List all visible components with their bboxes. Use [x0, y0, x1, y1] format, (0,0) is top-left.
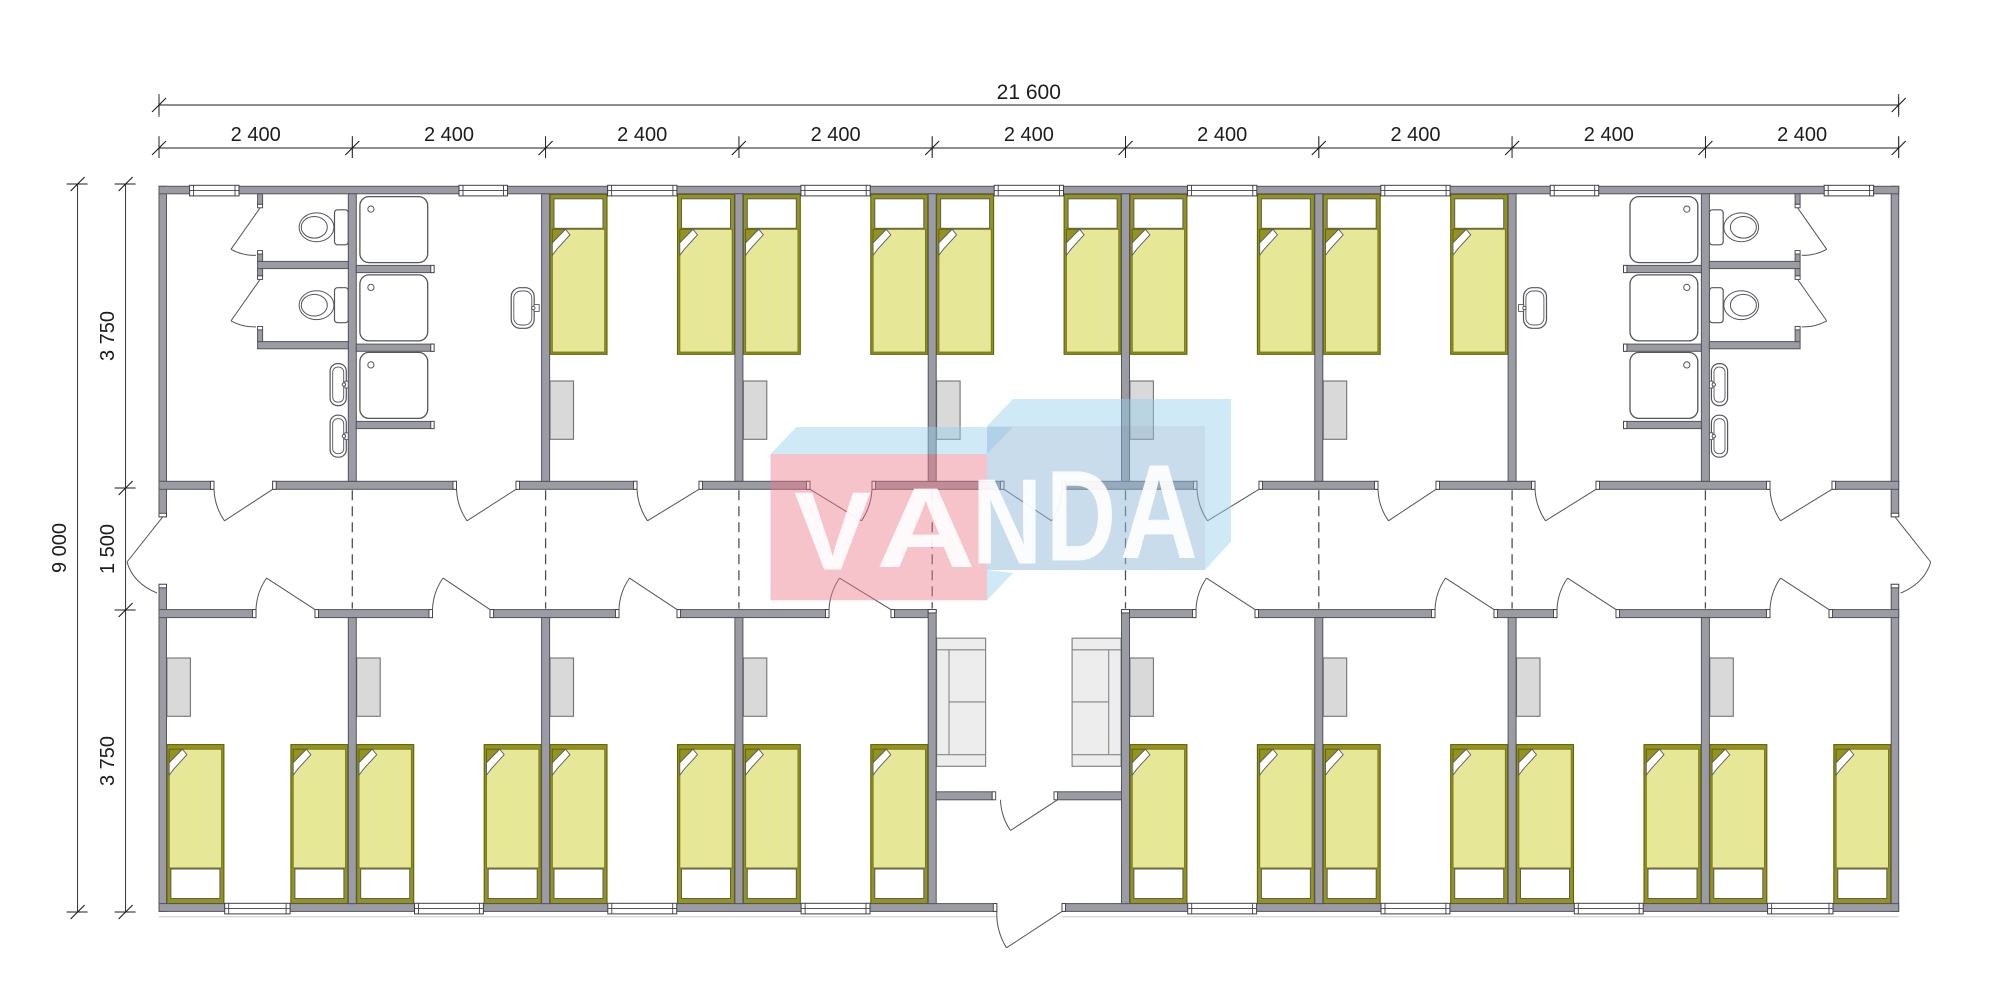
svg-text:V: V: [794, 470, 871, 595]
svg-text:3 750: 3 750: [97, 311, 119, 361]
svg-text:D: D: [1046, 444, 1116, 589]
svg-text:3 750: 3 750: [97, 736, 119, 786]
svg-text:2 400: 2 400: [1584, 124, 1634, 146]
svg-text:2 400: 2 400: [1197, 124, 1247, 146]
svg-text:2 400: 2 400: [1390, 124, 1440, 146]
svg-text:2 400: 2 400: [617, 124, 667, 146]
svg-text:2 400: 2 400: [1004, 124, 1054, 146]
svg-text:N: N: [972, 455, 1042, 590]
svg-text:21 600: 21 600: [997, 81, 1061, 104]
svg-text:1 500: 1 500: [97, 524, 119, 574]
svg-text:A: A: [1120, 437, 1198, 587]
svg-text:2 400: 2 400: [811, 124, 861, 146]
svg-text:9 000: 9 000: [49, 523, 71, 573]
svg-text:2 400: 2 400: [424, 124, 474, 146]
svg-text:A: A: [876, 464, 976, 591]
svg-text:2 400: 2 400: [1777, 124, 1827, 146]
svg-text:2 400: 2 400: [231, 124, 281, 146]
